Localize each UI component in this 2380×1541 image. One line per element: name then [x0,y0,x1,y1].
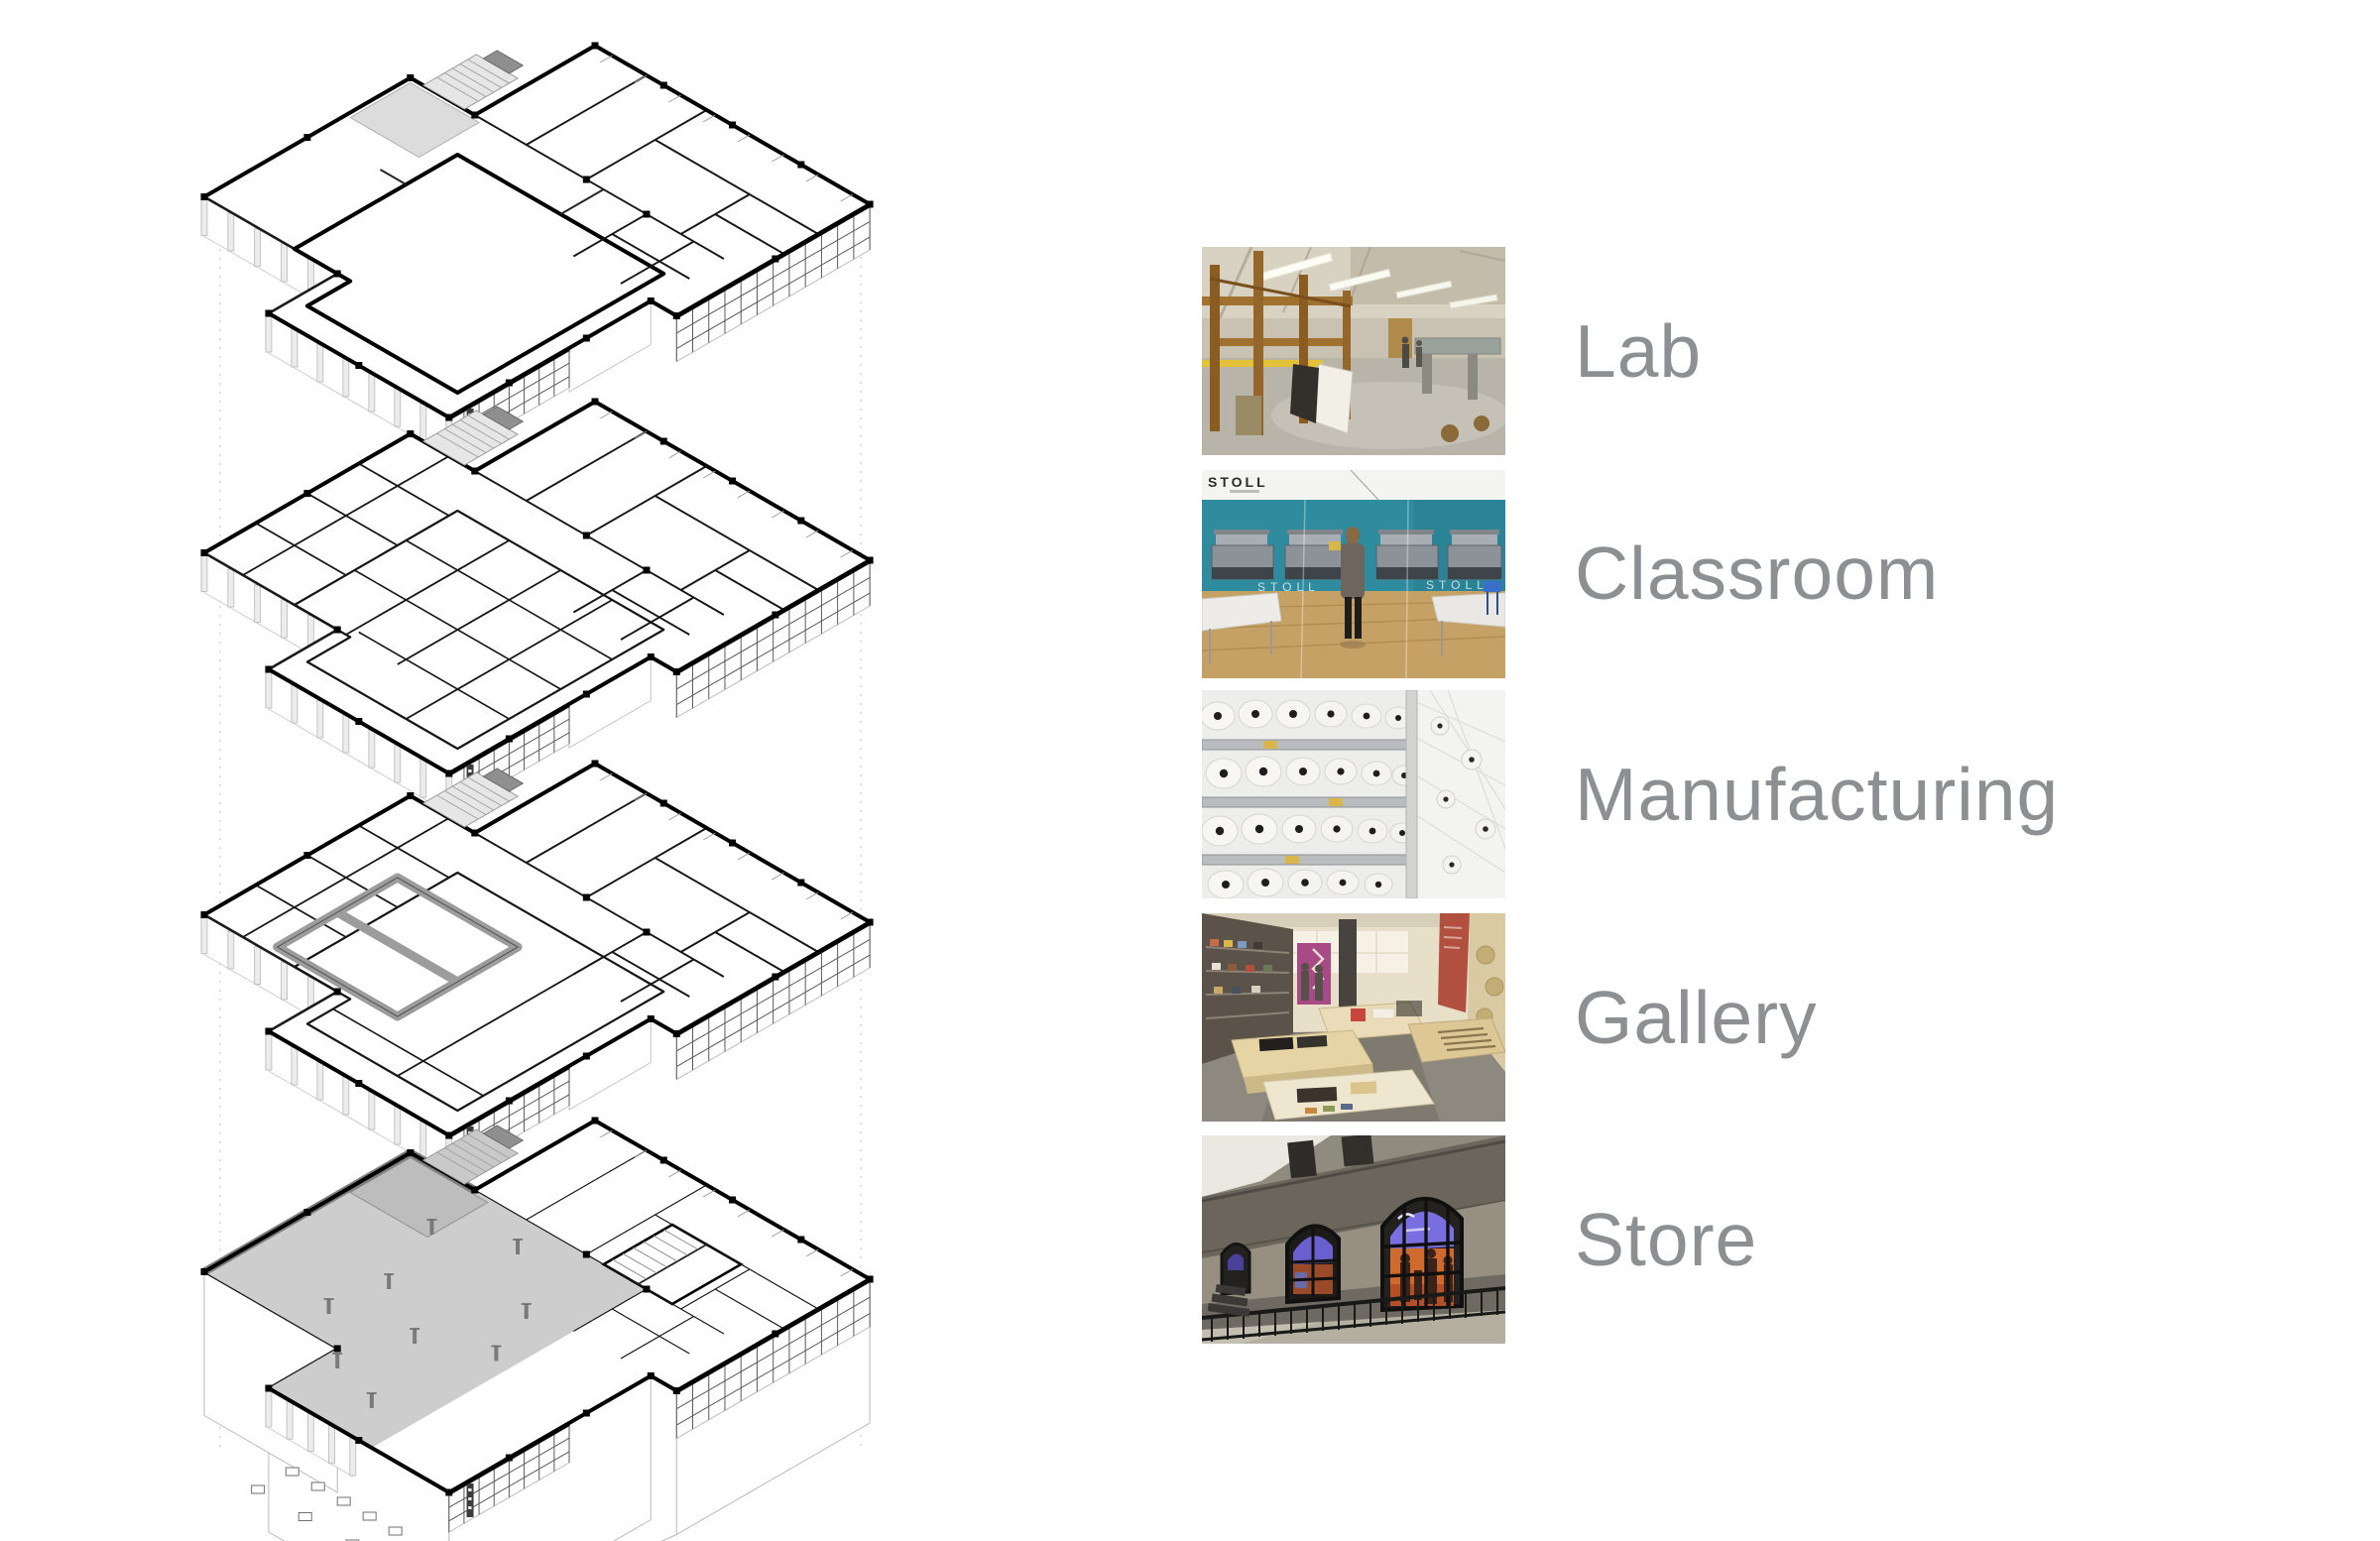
storefront-scene [1202,1135,1505,1344]
weaving-lab-scene [1202,247,1505,455]
exhibition-gallery-scene [1202,913,1505,1122]
photo-weaving-lab [1202,247,1505,455]
arched-window-medium [1287,1226,1339,1302]
program-label-manufacturing: Manufacturing [1575,758,2059,832]
stoll-sign-wall-right: STOLL [1426,578,1488,592]
program-legend: Lab STOLL STOLL STOLL [0,0,2380,1541]
knitting-classroom-scene: STOLL STOLL STOLL [1202,470,1505,678]
yarn-spool-creel-scene [1202,690,1505,898]
program-label-lab: Lab [1575,314,1702,389]
program-row-gallery: Gallery [1202,914,1818,1121]
photo-yarn-spools [1202,690,1505,898]
slide-canvas: Lab STOLL STOLL STOLL [0,0,2380,1541]
program-row-lab: Lab [1202,248,1702,454]
photo-gallery [1202,913,1505,1122]
program-label-classroom: Classroom [1575,536,1939,611]
program-row-manufacturing: Manufacturing [1202,689,2059,899]
program-label-gallery: Gallery [1575,981,1818,1055]
program-row-classroom: STOLL STOLL STOLL [1202,466,1939,681]
photo-storefront [1202,1135,1505,1344]
photo-knitting-classroom: STOLL STOLL STOLL [1202,470,1505,678]
program-row-store: Store [1202,1135,1757,1344]
stoll-sign-black: STOLL [1208,474,1268,490]
program-label-store: Store [1575,1203,1757,1277]
